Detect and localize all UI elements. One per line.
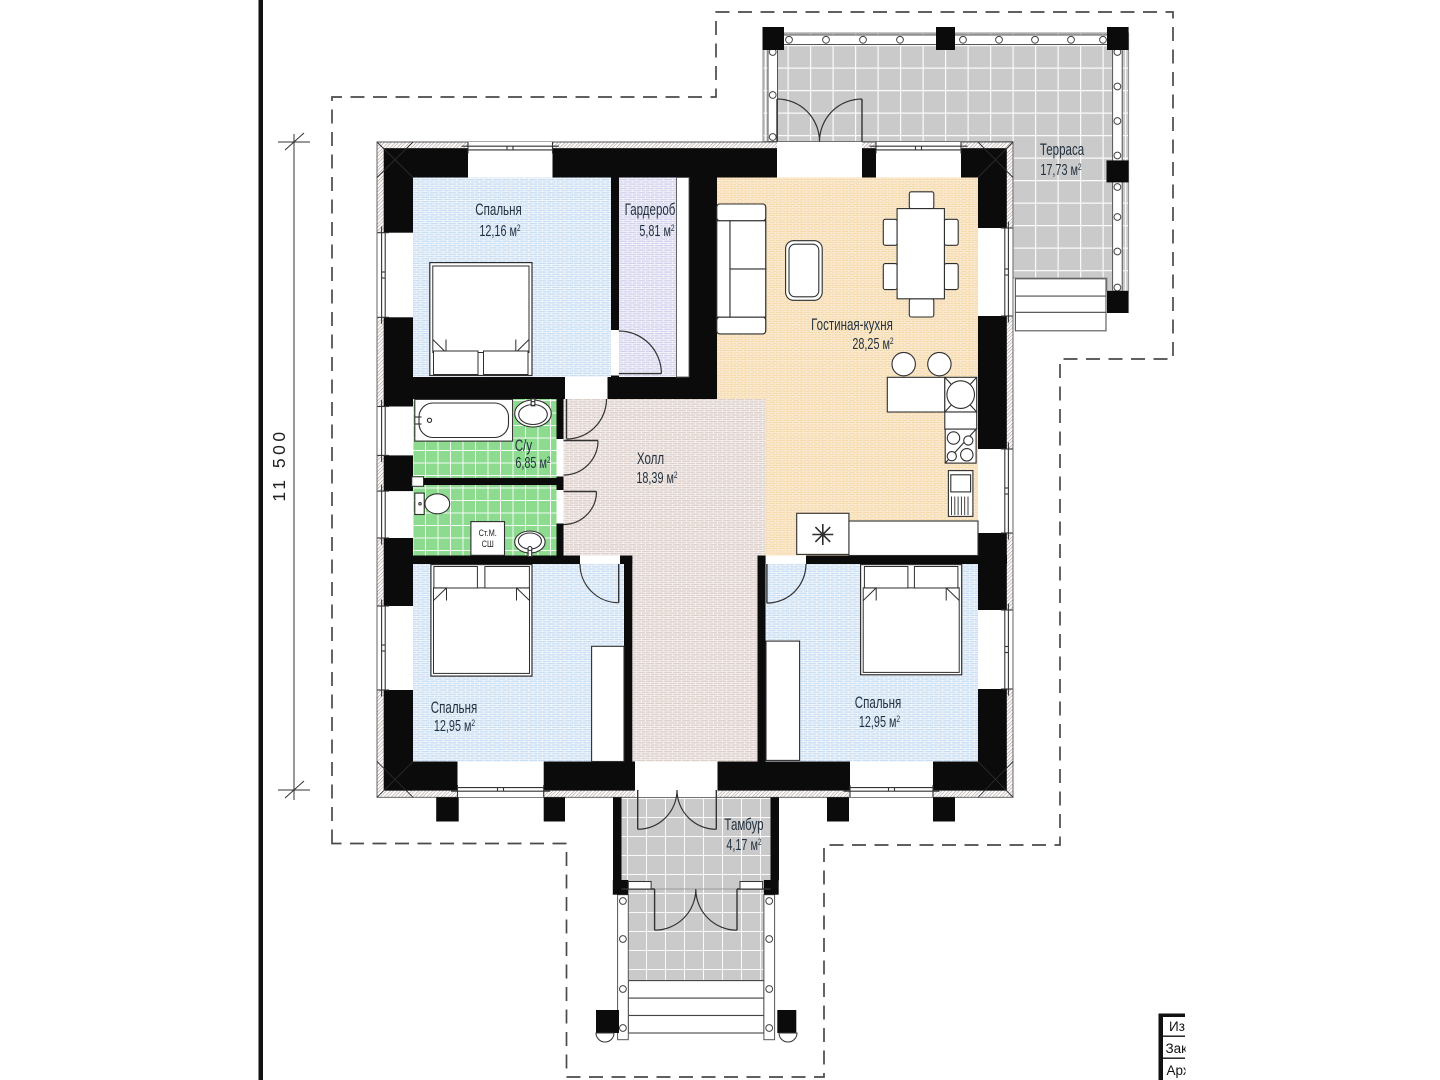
svg-text:Гостиная-кухня: Гостиная-кухня — [811, 316, 893, 335]
svg-text:4,17 м2: 4,17 м2 — [726, 836, 762, 853]
svg-text:Спальня: Спальня — [475, 201, 521, 220]
svg-text:Спальня: Спальня — [431, 699, 477, 718]
svg-text:Терраса: Терраса — [1040, 141, 1084, 160]
svg-text:Тамбур: Тамбур — [724, 816, 763, 835]
svg-text:Холл: Холл — [637, 450, 664, 469]
svg-text:12,95 м2: 12,95 м2 — [859, 713, 901, 730]
svg-text:28,25 м2: 28,25 м2 — [852, 335, 894, 352]
svg-text:17,73 м2: 17,73 м2 — [1040, 161, 1082, 178]
svg-text:Ст.М.: Ст.М. — [479, 527, 497, 538]
svg-text:11 500: 11 500 — [269, 428, 289, 501]
svg-text:С/у: С/у — [515, 437, 533, 456]
svg-text:Спальня: Спальня — [855, 694, 901, 713]
svg-text:6,85 м2: 6,85 м2 — [515, 454, 551, 471]
svg-text:5,81 м2: 5,81 м2 — [639, 222, 675, 239]
svg-text:Гардероб: Гардероб — [625, 201, 676, 220]
svg-text:12,16 м2: 12,16 м2 — [479, 222, 521, 239]
svg-text:18,39 м2: 18,39 м2 — [636, 469, 678, 486]
svg-text:12,95 м2: 12,95 м2 — [434, 717, 476, 734]
svg-text:СШ: СШ — [482, 538, 494, 549]
